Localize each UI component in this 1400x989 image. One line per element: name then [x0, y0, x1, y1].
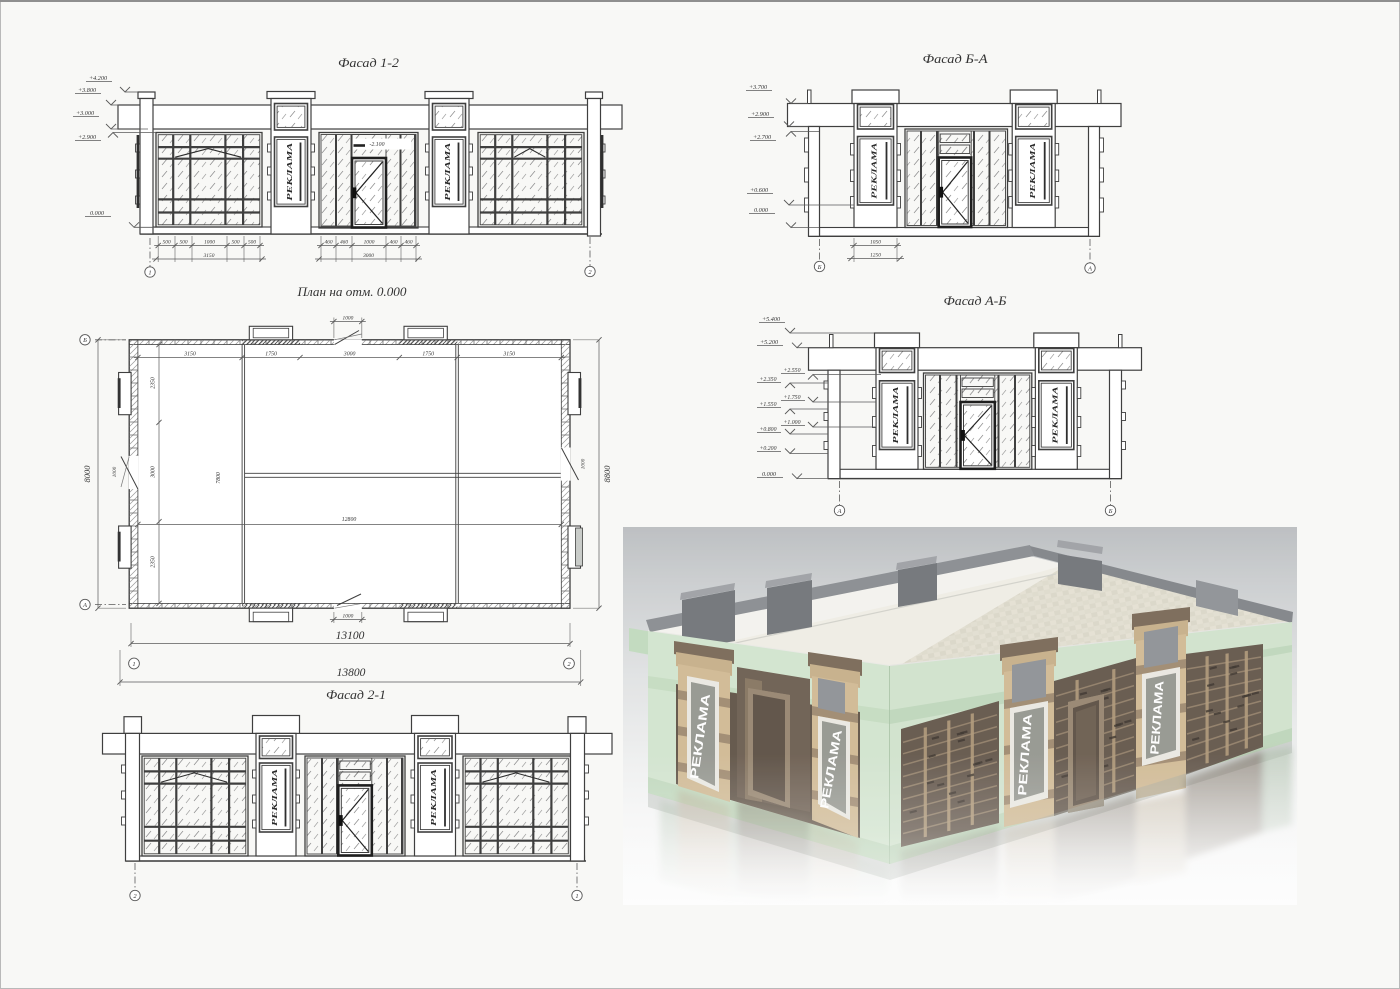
svg-text:500: 500	[248, 240, 256, 246]
svg-text:0.000: 0.000	[762, 471, 777, 478]
svg-text:+2.900: +2.900	[751, 111, 770, 118]
svg-text:1000: 1000	[343, 614, 354, 620]
svg-text:2350: 2350	[151, 556, 157, 568]
svg-text:РЕКЛАМА: РЕКЛАМА	[430, 768, 438, 826]
svg-text:1000: 1000	[343, 316, 354, 322]
svg-text:3150: 3150	[502, 352, 515, 358]
svg-text:500: 500	[231, 240, 239, 246]
svg-text:Б: Б	[82, 337, 87, 344]
svg-text:1050: 1050	[870, 240, 881, 246]
svg-text:1: 1	[148, 269, 151, 276]
svg-text:+5.200: +5.200	[760, 339, 779, 346]
svg-text:Б: Б	[1108, 508, 1113, 515]
svg-text:+3.000: +3.000	[76, 110, 95, 117]
svg-text:Фасад А-Б: Фасад А-Б	[944, 293, 1007, 308]
svg-text:7800: 7800	[216, 472, 222, 484]
svg-text:План на отм. 0.000: План на отм. 0.000	[296, 284, 407, 299]
svg-text:460: 460	[404, 240, 412, 246]
svg-text:Фасад Б-А: Фасад Б-А	[923, 51, 988, 66]
svg-text:1000: 1000	[364, 240, 375, 246]
svg-text:3150: 3150	[203, 253, 215, 259]
svg-text:Б: Б	[817, 264, 822, 271]
svg-text:Фасад 2-1: Фасад 2-1	[326, 687, 386, 702]
svg-text:1750: 1750	[265, 352, 277, 358]
svg-text:А: А	[82, 602, 87, 609]
svg-text:13100: 13100	[336, 630, 365, 642]
svg-text:РЕКЛАМА: РЕКЛАМА	[892, 386, 900, 444]
svg-text:500: 500	[163, 240, 171, 246]
svg-text:+2.700: +2.700	[753, 134, 772, 141]
svg-text:А: А	[837, 508, 842, 515]
svg-text:460: 460	[340, 240, 348, 246]
svg-text:РЕКЛАМА: РЕКЛАМА	[286, 142, 294, 201]
svg-text:+2.900: +2.900	[78, 134, 97, 141]
svg-text:РЕКЛАМА: РЕКЛАМА	[1029, 142, 1037, 199]
svg-text:1250: 1250	[870, 253, 881, 259]
svg-text:3000: 3000	[343, 352, 356, 358]
svg-text:+5.400: +5.400	[762, 316, 781, 323]
svg-text:1: 1	[132, 661, 135, 668]
svg-text:1000: 1000	[204, 240, 215, 246]
svg-text:1: 1	[575, 893, 578, 900]
svg-text:1750: 1750	[422, 352, 434, 358]
svg-text:+3.800: +3.800	[78, 87, 97, 94]
svg-text:500: 500	[179, 240, 187, 246]
svg-text:РЕКЛАМА: РЕКЛАМА	[871, 142, 879, 199]
svg-text:+4.200: +4.200	[89, 75, 108, 82]
svg-text:13800: 13800	[337, 667, 366, 679]
svg-text:0.000: 0.000	[90, 210, 105, 217]
svg-text:8800: 8800	[602, 465, 612, 483]
svg-text:+0.600: +0.600	[750, 187, 769, 194]
svg-text:1000: 1000	[581, 458, 587, 469]
svg-text:РЕКЛАМА: РЕКЛАМА	[271, 768, 279, 826]
svg-text:3000: 3000	[151, 466, 157, 479]
svg-text:+3.700: +3.700	[749, 84, 768, 91]
svg-text:460: 460	[324, 240, 332, 246]
svg-text:РЕКЛАМА: РЕКЛАМА	[444, 142, 452, 201]
svg-text:3150: 3150	[183, 352, 196, 358]
svg-text:А: А	[1087, 265, 1092, 272]
svg-text:2350: 2350	[151, 377, 157, 389]
svg-text:8000: 8000	[82, 465, 92, 483]
svg-text:-2.100: -2.100	[370, 142, 385, 148]
svg-text:12800: 12800	[342, 517, 357, 523]
svg-text:460: 460	[389, 240, 397, 246]
svg-text:1000: 1000	[112, 466, 118, 477]
svg-text:0.000: 0.000	[754, 207, 769, 214]
svg-text:РЕКЛАМА: РЕКЛАМА	[1052, 386, 1060, 444]
svg-text:Фасад 1-2: Фасад 1-2	[338, 55, 400, 70]
svg-text:3000: 3000	[362, 253, 374, 259]
